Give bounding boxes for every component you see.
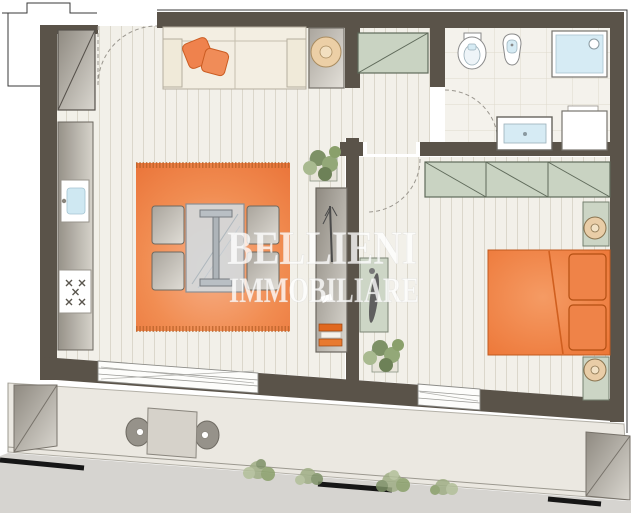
chair (152, 252, 184, 290)
shower (552, 31, 607, 77)
kitchen-counter (58, 122, 93, 350)
balcony-table (147, 408, 197, 458)
washing-machine (562, 106, 607, 150)
nightstand-bottom (583, 357, 609, 400)
double-bed (488, 250, 610, 355)
wall-hall-bath (430, 26, 445, 92)
nightstand-top (583, 202, 609, 246)
balcony-chair-right (195, 421, 219, 449)
kitchen-sink (61, 180, 89, 222)
bidet (503, 34, 521, 65)
cooktop (59, 270, 91, 313)
wall-right (610, 12, 624, 422)
bedroom-window (418, 384, 480, 410)
hall-wardrobe (358, 33, 428, 73)
watermark: BELLIENI IMMOBILIARE (227, 222, 419, 310)
watermark-line2: IMMOBILIARE (229, 270, 419, 310)
washbasin-cabinet (497, 117, 552, 150)
bedroom-wardrobe (425, 162, 610, 197)
balcony-chair-left (126, 418, 150, 446)
entry-closet (58, 30, 95, 110)
balcony-storage-left (14, 385, 57, 452)
sofa (163, 27, 306, 89)
pillow (569, 305, 606, 350)
hallway (358, 33, 428, 73)
wall-top (157, 12, 624, 28)
chair (152, 206, 184, 244)
balcony-storage-right (586, 432, 630, 500)
side-table (309, 28, 344, 88)
wall-bedroom-top-left (340, 142, 367, 156)
books (319, 324, 342, 346)
wall-left (40, 25, 57, 380)
watermark-line1: BELLIENI (227, 222, 417, 275)
pillow (569, 254, 606, 300)
passage-floor (345, 88, 359, 138)
floor-plan-page: BELLIENI IMMOBILIARE (0, 0, 631, 513)
floor-plan-drawing: BELLIENI IMMOBILIARE (0, 0, 631, 513)
